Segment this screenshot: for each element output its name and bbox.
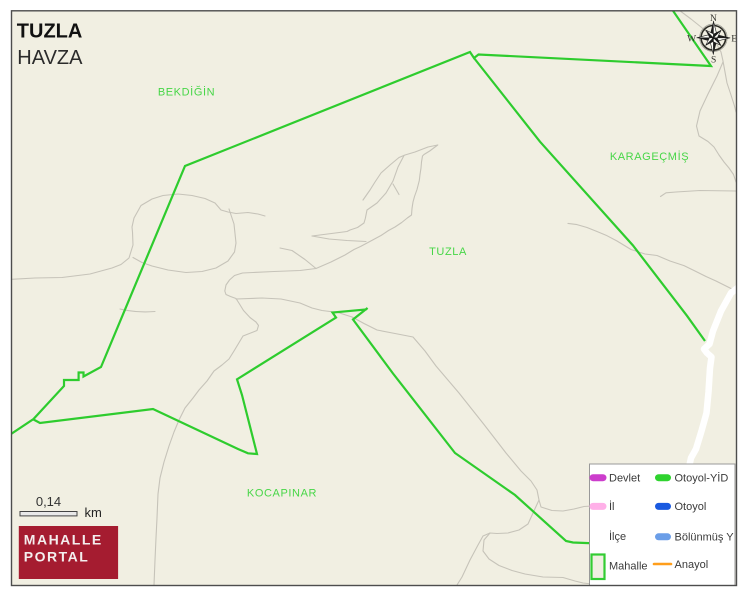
svg-text:Otoyol-YİD: Otoyol-YİD [675,471,729,484]
svg-text:İlçe: İlçe [609,530,626,543]
svg-text:Mahalle: Mahalle [609,560,648,572]
svg-text:PORTAL: PORTAL [24,548,90,564]
svg-text:0,14: 0,14 [36,494,61,509]
svg-text:KOCAPINAR: KOCAPINAR [247,488,317,500]
svg-text:S: S [711,56,716,66]
svg-text:Anayol: Anayol [675,559,709,571]
svg-text:KARAGEÇMİŞ: KARAGEÇMİŞ [610,150,689,163]
svg-text:BEKDİĞİN: BEKDİĞİN [158,86,215,99]
svg-text:HAVZA: HAVZA [17,47,83,69]
svg-text:N: N [710,14,717,24]
svg-text:İl: İl [609,500,615,513]
svg-text:Bölünmüş Y: Bölünmüş Y [675,532,735,544]
svg-text:TUZLA: TUZLA [17,20,83,42]
svg-text:Devlet: Devlet [609,472,640,484]
svg-text:W: W [687,34,696,44]
svg-text:Otoyol: Otoyol [675,501,707,513]
svg-text:km: km [85,505,102,520]
svg-text:TUZLA: TUZLA [429,246,467,258]
svg-text:MAHALLE: MAHALLE [24,532,103,548]
